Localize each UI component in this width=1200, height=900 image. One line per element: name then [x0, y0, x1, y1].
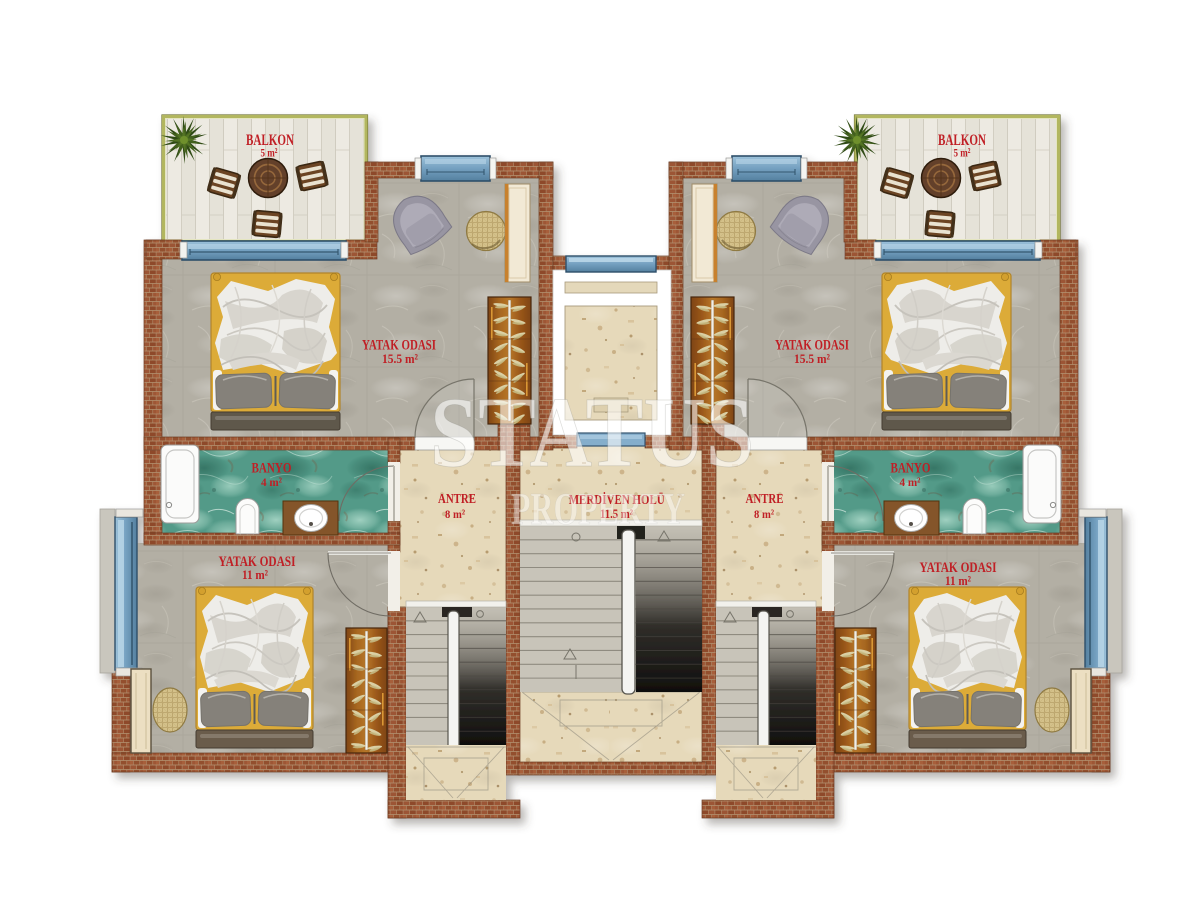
svg-text:8 m²: 8 m² — [445, 507, 465, 521]
svg-text:4 m²: 4 m² — [900, 475, 921, 489]
svg-text:PROPERTY: PROPERTY — [511, 484, 685, 534]
svg-text:11 m²: 11 m² — [242, 567, 268, 582]
svg-text:STATUS: STATUS — [430, 376, 754, 488]
svg-text:5 m²: 5 m² — [954, 146, 971, 160]
svg-text:15.5 m²: 15.5 m² — [382, 351, 418, 366]
svg-text:8 m²: 8 m² — [754, 507, 774, 521]
svg-text:11 m²: 11 m² — [945, 573, 971, 588]
svg-text:15.5 m²: 15.5 m² — [794, 351, 830, 366]
svg-text:4 m²: 4 m² — [261, 475, 282, 489]
svg-text:ANTRE: ANTRE — [746, 492, 784, 507]
svg-text:5 m²: 5 m² — [261, 146, 278, 160]
svg-text:ANTRE: ANTRE — [438, 492, 476, 507]
